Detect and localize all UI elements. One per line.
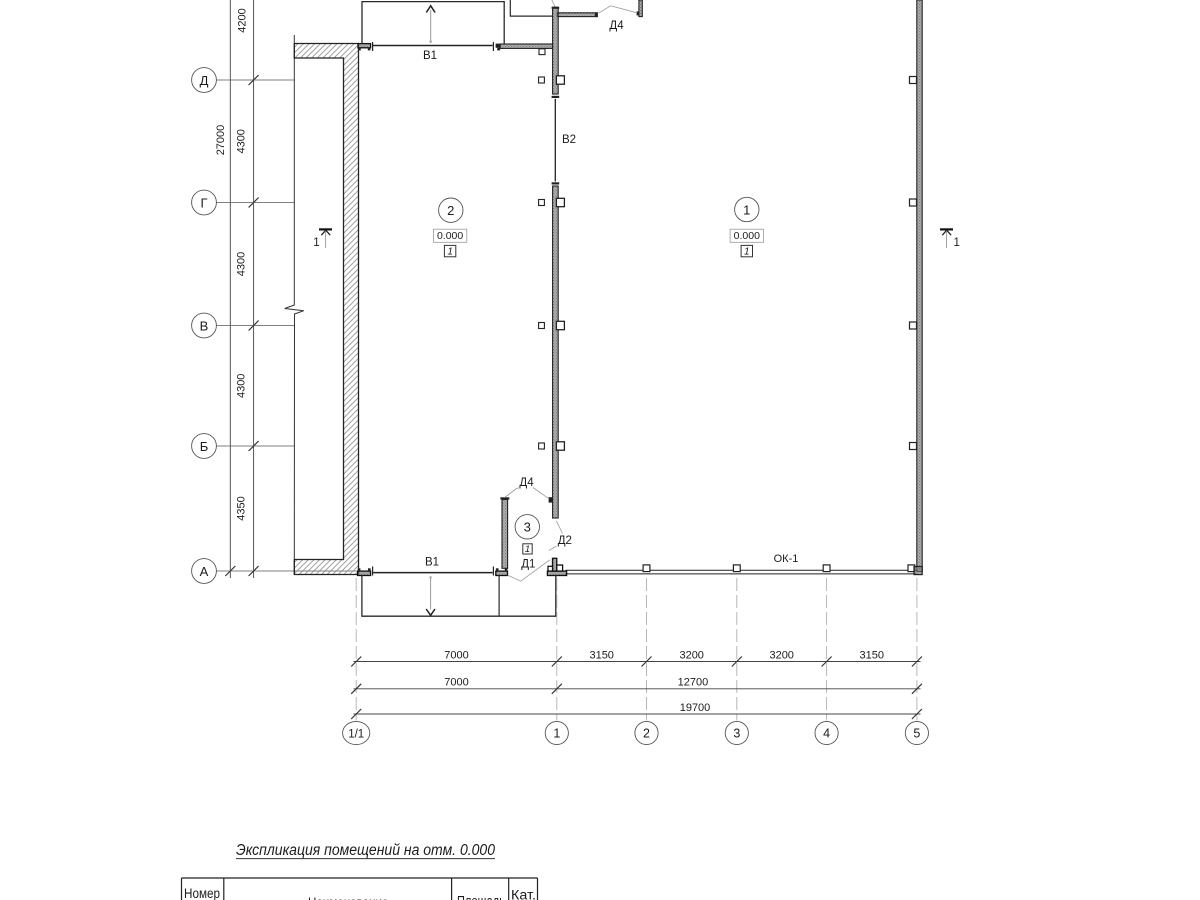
svg-text:1: 1 [525,544,530,555]
svg-text:А: А [200,564,209,579]
svg-text:4300: 4300 [236,252,248,276]
svg-text:3200: 3200 [769,649,793,661]
svg-text:0.000: 0.000 [734,230,760,242]
svg-text:Д4: Д4 [519,477,534,489]
svg-text:1: 1 [954,237,960,249]
svg-text:0.000: 0.000 [437,230,463,242]
svg-text:Кат.: Кат. [511,888,536,900]
svg-text:12700: 12700 [678,677,709,689]
svg-text:Д: Д [200,73,209,88]
svg-text:5: 5 [913,727,920,741]
svg-text:3150: 3150 [860,649,884,661]
svg-text:4: 4 [823,727,830,741]
svg-text:Д4: Д4 [609,20,624,32]
svg-text:7000: 7000 [444,677,468,689]
svg-text:4200: 4200 [237,8,249,32]
svg-text:3200: 3200 [679,649,703,661]
svg-text:В1: В1 [425,557,439,569]
svg-text:ОК-1: ОК-1 [774,553,799,565]
svg-text:Экспликация помещений на отм.: Экспликация помещений на отм. 0.000 [236,842,495,859]
svg-text:3: 3 [733,727,740,741]
svg-text:Номер: Номер [184,886,220,900]
svg-text:Б: Б [200,439,209,454]
svg-text:4300: 4300 [236,374,248,398]
svg-text:2: 2 [447,203,454,218]
svg-text:1: 1 [313,237,319,249]
svg-text:В2: В2 [562,134,576,146]
svg-text:1/1: 1/1 [348,729,364,741]
svg-text:27000: 27000 [215,125,227,156]
svg-text:3: 3 [524,520,531,535]
svg-text:В1: В1 [423,50,437,62]
svg-text:4350: 4350 [236,496,248,520]
svg-text:1: 1 [553,727,560,741]
svg-text:1: 1 [744,246,750,257]
svg-text:19700: 19700 [680,702,711,714]
svg-text:Д1: Д1 [521,558,535,570]
svg-text:1: 1 [447,246,453,257]
svg-text:4300: 4300 [236,129,248,153]
svg-text:7000: 7000 [444,649,468,661]
svg-text:3150: 3150 [589,649,613,661]
svg-text:В: В [200,318,209,333]
svg-text:1: 1 [743,202,750,217]
svg-text:Наименование: Наименование [308,895,389,900]
svg-text:Д2: Д2 [558,535,572,547]
svg-text:Г: Г [200,195,207,210]
svg-text:2: 2 [643,727,650,741]
svg-text:Площадь: Площадь [457,894,505,900]
